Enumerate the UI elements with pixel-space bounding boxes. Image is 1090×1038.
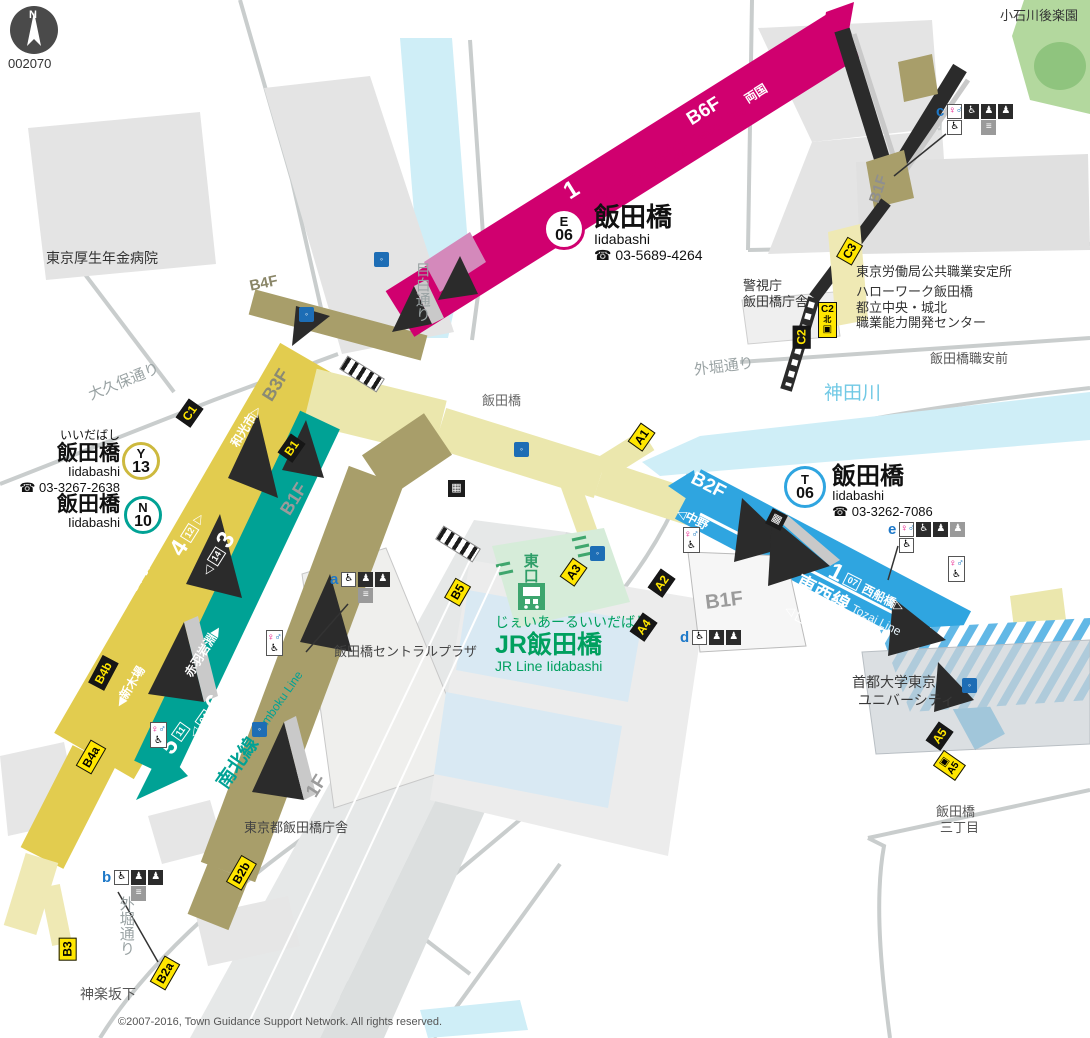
tozai-station-badge: T 06 <box>784 466 826 508</box>
facility-letter-d: d <box>680 630 689 645</box>
city-office-label: 東京都飯田橋庁舎 <box>244 820 348 836</box>
oedo-station-badge: E 06 <box>543 208 585 250</box>
street-mejiro-dori: 目白通り <box>412 262 431 322</box>
stroller-icon: ♟ <box>981 104 996 119</box>
toilet-icon: ♀♂ <box>899 522 914 537</box>
street-sotobori-dori-south: 外堀通り <box>116 896 135 956</box>
namboku-station-badge: N 10 <box>124 496 162 534</box>
station-area-map: N 002070 都営大江戸線 Oedo Line B6F 2 07 ▷ 1 ◁… <box>0 0 1090 1038</box>
wheelchair-toilet-icon: ♿ <box>899 538 914 553</box>
copyright-text: ©2007-2016, Town Guidance Support Networ… <box>118 1016 442 1030</box>
wheelchair-icon: ♿ <box>692 630 707 645</box>
central-plaza-label: 飯田橋セントラルプラザ <box>334 644 477 660</box>
escalator-icon: ≡ <box>981 120 996 135</box>
tozai-b1f-building-label: B1F <box>704 587 744 614</box>
exit-c2: C2 <box>793 325 811 348</box>
facility-letter-e: e <box>888 522 896 537</box>
university-label: 首都大学東京 ユニバーシティ <box>852 674 955 709</box>
hospital-label: 東京厚生年金病院 <box>46 250 158 268</box>
stroller-icon: ♟ <box>358 572 373 587</box>
station-kana: いいだばし <box>13 426 120 443</box>
oedo-phone: ☎ 03-5689-4264 <box>594 247 703 264</box>
facility-letter-c: c <box>936 104 944 119</box>
wheelchair-toilet-icon: ♿ <box>947 120 962 135</box>
exit-c2-elevator: C2 北 ▣ <box>818 302 837 338</box>
facility-letter-b: b <box>102 870 111 885</box>
water-fountain-icon: ◦ <box>590 546 605 561</box>
iidabashi-bridge-label: 飯田橋 <box>482 393 521 409</box>
wheelchair-icon: ♿ <box>916 522 931 537</box>
facility-cluster-a: a ♿ ♟ ≡ ♟ <box>330 572 390 603</box>
tozai-station-name: 飯田橋 Iidabashi ☎ 03-3262-7086 <box>832 464 933 520</box>
jr-east-exit-label: 東口 <box>520 553 539 583</box>
facility-letter-a: a <box>330 572 338 587</box>
facility-cluster-c: c ♀♂ ♿ ♿ ♟ ≡ ♟ <box>936 104 1013 135</box>
water-fountain-icon: ◦ <box>374 252 389 267</box>
kagurazaka-label: 神楽坂下 <box>80 986 136 1004</box>
toilet-icon: ♀♂ ♿ <box>150 722 167 748</box>
tozai-phone: ☎ 03-3262-7086 <box>832 504 933 520</box>
coin-locker-icon: ▦ <box>448 480 465 497</box>
toilet-icon: ♀♂ ♿ <box>683 527 700 553</box>
stroller-icon: ♟ <box>933 522 948 537</box>
compass-north-label: N <box>29 9 37 23</box>
water-fountain-icon: ◦ <box>962 678 977 693</box>
facility-cluster-d: d ♿ ♟ ♟ <box>680 630 741 645</box>
police-office-label: 警視庁 飯田橋庁舎 <box>743 278 808 311</box>
map-code: 002070 <box>8 56 51 72</box>
labor-office-label: 東京労働局公共職業安定所 ハローワーク飯田橋 都立中央・城北 職業能力開発センタ… <box>856 262 1012 331</box>
train-icon <box>518 583 545 610</box>
wheelchair-icon: ♿ <box>964 104 979 119</box>
yurakucho-station-name: いいだばし 飯田橋 Iidabashi ☎ 03-3267-2638 <box>13 426 120 496</box>
nursing-room-icon: ♟ <box>148 870 163 885</box>
shokuan-mae-label: 飯田橋職安前 <box>930 351 1008 367</box>
kanda-river-label: 神田川 <box>824 382 881 406</box>
north-label: 北 <box>823 316 831 324</box>
nursing-room-icon: ♟ <box>998 104 1013 119</box>
jr-station-name: じぇいあーるいいだばし JR飯田橋 JR Line Iidabashi <box>495 612 649 674</box>
stroller-icon: ♟ <box>709 630 724 645</box>
toilet-icon: ♀♂ ♿ <box>266 630 283 656</box>
compass-icon: N <box>10 6 58 54</box>
nursing-room-icon: ♟ <box>375 572 390 587</box>
car-position-badge: 07 <box>563 137 583 157</box>
wheelchair-icon: ♿ <box>341 572 356 587</box>
water-fountain-icon: ◦ <box>299 307 314 322</box>
oedo-station-name: 飯田橋 Iidabashi ☎ 03-5689-4264 <box>594 204 703 264</box>
escalator-icon: ≡ <box>358 588 373 603</box>
sanchome-label: 飯田橋 三丁目 <box>936 804 979 837</box>
water-fountain-icon: ◦ <box>514 442 529 457</box>
nursing-room-icon: ♟ <box>950 522 965 537</box>
facility-cluster-e: e ♀♂ ♿ ♿ ♟ ♟ <box>888 522 965 553</box>
nursing-room-icon: ♟ <box>726 630 741 645</box>
toilet-icon: ♀♂ ♿ <box>948 556 965 582</box>
elevator-icon: ▣ <box>823 325 832 335</box>
yurakucho-station-badge: Y 13 <box>122 442 160 480</box>
stroller-icon: ♟ <box>131 870 146 885</box>
park-label: 小石川後楽園 <box>1000 8 1078 24</box>
water-fountain-icon: ◦ <box>252 722 267 737</box>
namboku-station-name: 飯田橋 Iidabashi <box>13 494 120 531</box>
toilet-icon: ♀♂ <box>947 104 962 119</box>
exit-b3: B3 <box>59 937 77 960</box>
wheelchair-icon: ♿ <box>114 870 129 885</box>
